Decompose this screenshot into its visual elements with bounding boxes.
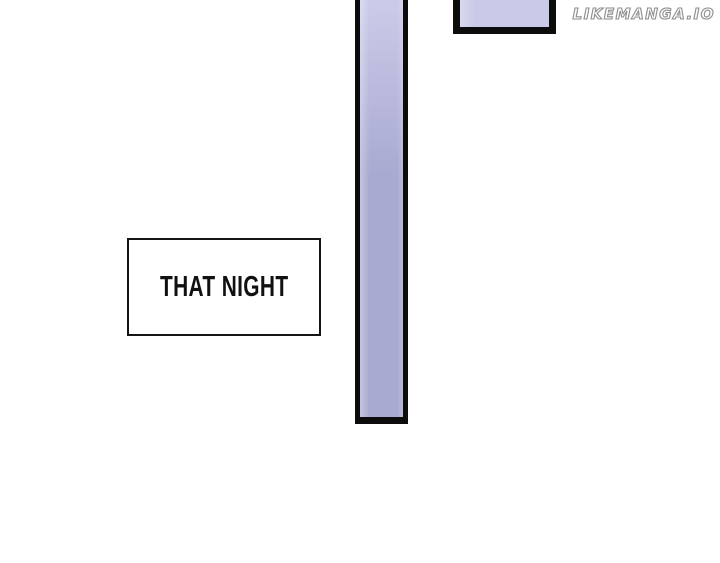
- narration-box: THAT NIGHT: [127, 238, 321, 336]
- artwork-panel-shape: [453, 0, 556, 34]
- artwork-pole-shape: [355, 0, 408, 424]
- site-watermark: LIKEMANGA.IO: [573, 5, 715, 23]
- narration-text: THAT NIGHT: [160, 271, 288, 304]
